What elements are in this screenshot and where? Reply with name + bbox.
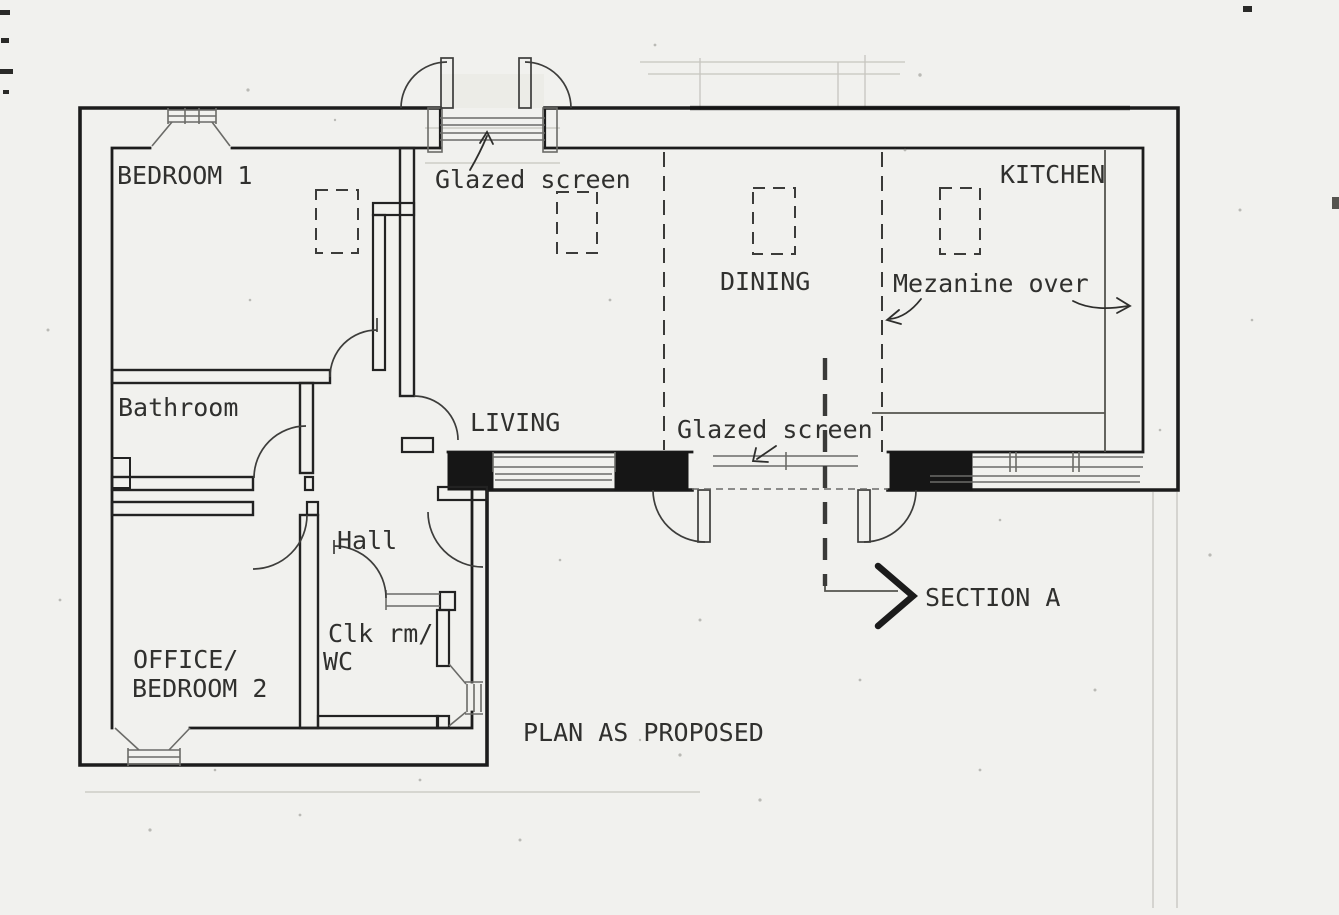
wall-pier: [448, 452, 493, 490]
drawing-title: PLAN AS PROPOSED: [523, 718, 764, 747]
room-label-office-line1: OFFICE/: [133, 645, 238, 674]
wall-pier: [615, 452, 688, 490]
room-label-living: LIVING: [470, 408, 560, 437]
floor-plan-drawing: BEDROOM 1 Glazed screen KITCHEN DINING M…: [0, 0, 1339, 915]
annotation-mezzanine: Mezanine over: [893, 269, 1089, 298]
annotation-glazed-screen-entrance: Glazed screen: [435, 165, 631, 194]
room-label-dining: DINING: [720, 267, 810, 296]
room-label-bedroom1: BEDROOM 1: [117, 161, 252, 190]
annotation-section-marker: SECTION A: [925, 583, 1060, 612]
room-label-office-line2: BEDROOM 2: [132, 674, 267, 703]
room-label-kitchen: KITCHEN: [1000, 160, 1105, 189]
room-label-cloakroom-line2: WC: [323, 647, 353, 676]
annotation-glazed-screen-garden: Glazed screen: [677, 415, 873, 444]
room-label-bathroom: Bathroom: [118, 393, 238, 422]
room-label-hall: Hall: [337, 526, 397, 555]
wall-pier: [890, 452, 972, 490]
floor-plan-sheet: BEDROOM 1 Glazed screen KITCHEN DINING M…: [0, 0, 1339, 915]
room-label-cloakroom-line1: Clk rm/: [328, 619, 433, 648]
